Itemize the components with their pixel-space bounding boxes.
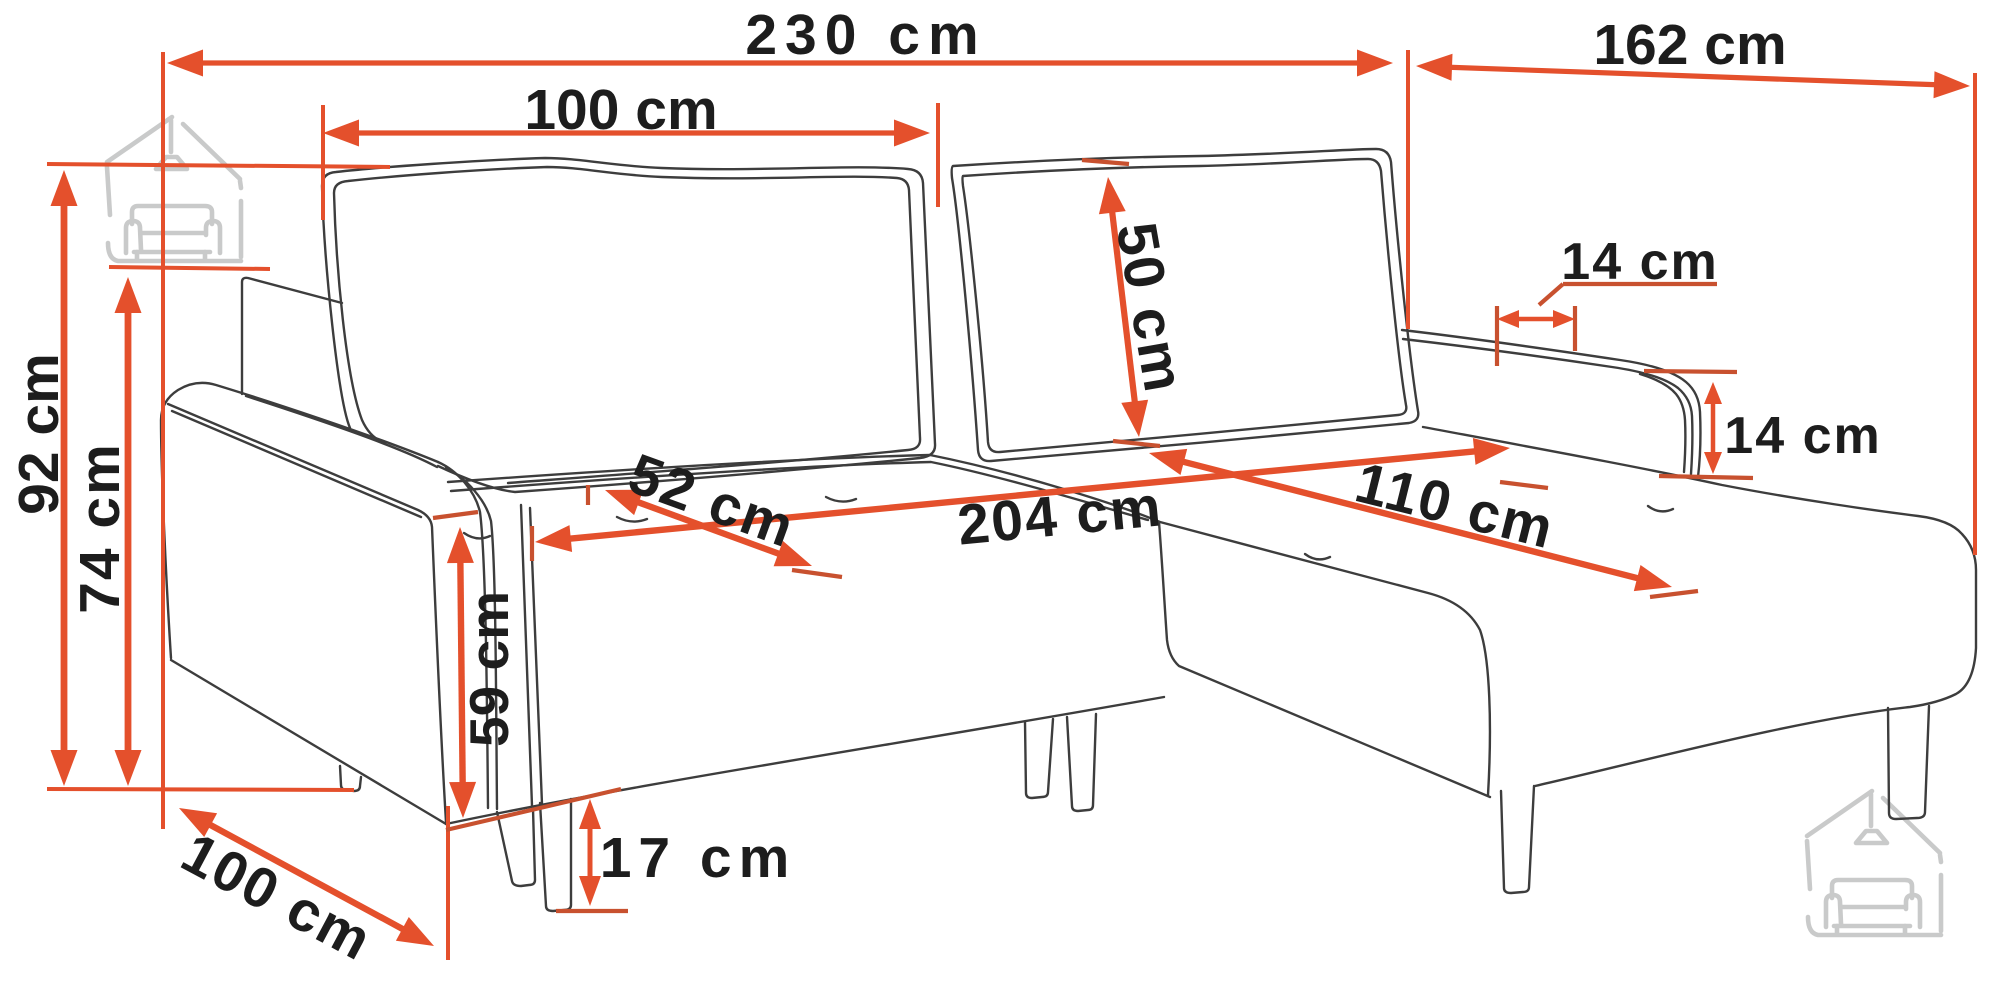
svg-text:74 cm: 74 cm [68, 442, 132, 614]
svg-text:14 cm: 14 cm [1561, 233, 1718, 291]
svg-text:162 cm: 162 cm [1593, 13, 1786, 77]
svg-text:100 cm: 100 cm [524, 78, 717, 142]
svg-text:14 cm: 14 cm [1724, 407, 1881, 465]
svg-text:230 cm: 230 cm [745, 3, 986, 67]
svg-text:92 cm: 92 cm [7, 353, 71, 515]
svg-text:17 cm: 17 cm [600, 826, 797, 890]
svg-text:59 cm: 59 cm [458, 591, 520, 747]
